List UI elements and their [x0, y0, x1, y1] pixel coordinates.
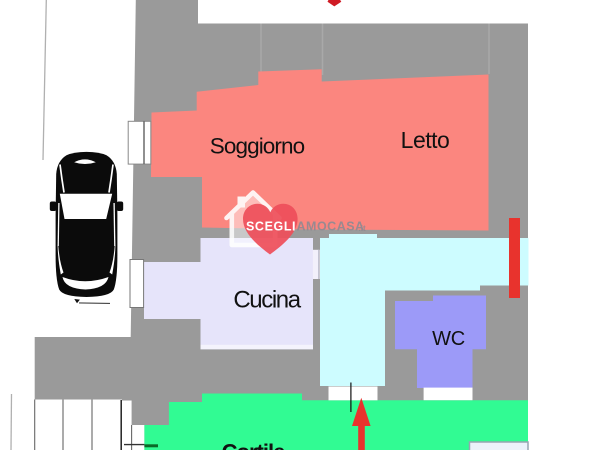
svg-text:AMOCASA: AMOCASA [297, 220, 365, 234]
svg-text:WC: WC [432, 328, 465, 350]
svg-text:Cortile: Cortile [222, 440, 285, 450]
svg-text:SCEGLI: SCEGLI [246, 220, 296, 234]
svg-text:Cucina: Cucina [233, 287, 301, 314]
svg-text:Letto: Letto [401, 127, 450, 153]
svg-text:Soggiorno: Soggiorno [210, 134, 305, 159]
svg-text:.it: .it [359, 224, 366, 233]
